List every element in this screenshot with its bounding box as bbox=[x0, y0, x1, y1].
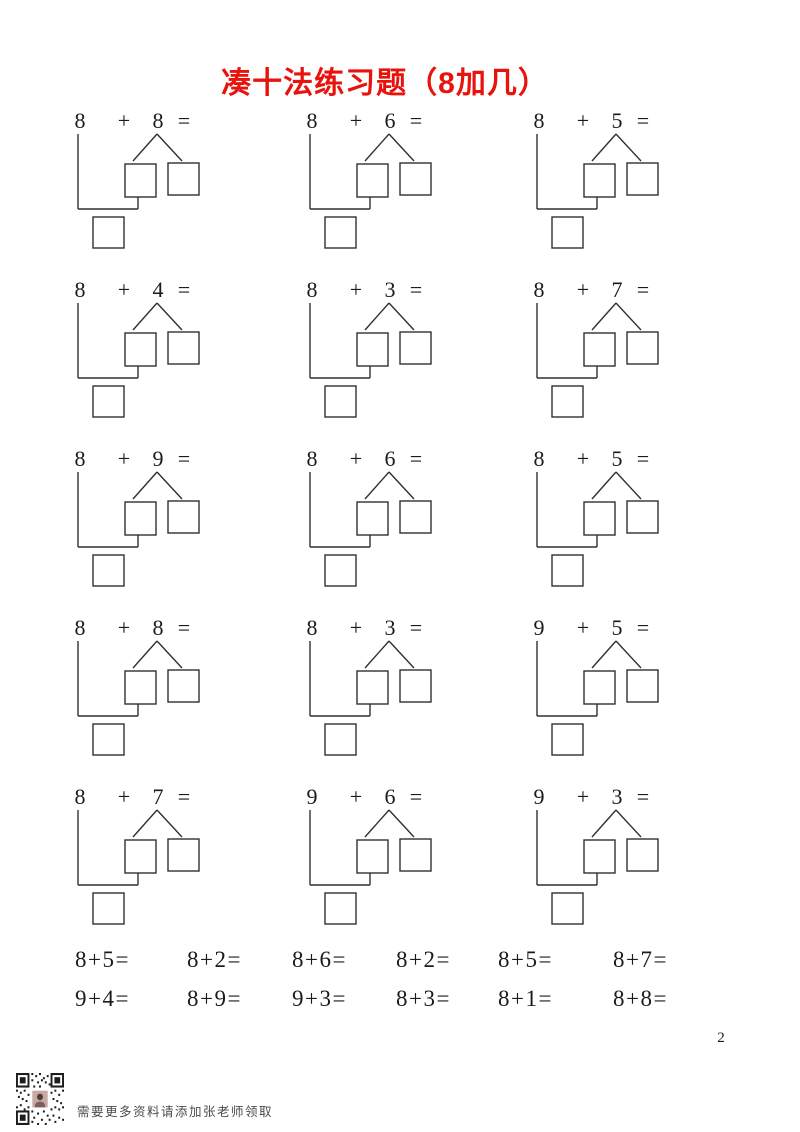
addend-1: 8 bbox=[68, 277, 92, 303]
answer-box bbox=[93, 386, 124, 417]
plus-sign: + bbox=[344, 277, 368, 303]
plus-sign: + bbox=[344, 446, 368, 472]
plus-sign: + bbox=[571, 615, 595, 641]
bond-line-left bbox=[133, 134, 157, 161]
bond-line-right bbox=[616, 303, 641, 330]
bond-line-left bbox=[592, 641, 616, 668]
quick-row-1: 8+5= 8+2= 8+6= 8+2= 8+5= 8+7= bbox=[68, 946, 758, 976]
addend-1: 8 bbox=[300, 615, 324, 641]
addend-1: 8 bbox=[68, 615, 92, 641]
addend-1: 9 bbox=[300, 784, 324, 810]
bond-line-right bbox=[389, 641, 414, 668]
number-bond-diagram bbox=[527, 470, 677, 592]
part-box-right bbox=[168, 332, 199, 364]
equals-sign: = bbox=[172, 446, 196, 472]
answer-box bbox=[325, 724, 356, 755]
worksheet-page: 凑十法练习题（8加几） 8 + 8 = 8 + 6 = bbox=[0, 0, 800, 1132]
bond-line-right bbox=[157, 134, 182, 161]
addend-2: 9 bbox=[146, 446, 170, 472]
equation: 8 + 7 = bbox=[527, 277, 677, 303]
problem-cell: 9 + 3 = bbox=[527, 784, 768, 953]
answer-box bbox=[552, 217, 583, 248]
problem-cell: 8 + 8 = bbox=[68, 108, 300, 277]
quick-practice: 8+5= 8+2= 8+6= 8+2= 8+5= 8+7= 9+4= 8+9= … bbox=[68, 946, 758, 1026]
answer-box bbox=[325, 893, 356, 924]
addend-2: 8 bbox=[146, 615, 170, 641]
quick-equation: 8+9= bbox=[187, 985, 242, 1013]
part-box-right bbox=[627, 332, 658, 364]
part-box-left bbox=[584, 502, 615, 535]
part-box-left bbox=[357, 671, 388, 704]
number-bond-diagram bbox=[300, 470, 450, 592]
plus-sign: + bbox=[344, 615, 368, 641]
equals-sign: = bbox=[631, 277, 655, 303]
quick-equation: 9+4= bbox=[75, 985, 130, 1013]
bond-line-left bbox=[133, 641, 157, 668]
problem-cell: 9 + 6 = bbox=[300, 784, 527, 953]
part-box-right bbox=[627, 670, 658, 702]
part-box-left bbox=[357, 333, 388, 366]
problem-cell: 8 + 5 = bbox=[527, 446, 768, 615]
answer-box bbox=[93, 217, 124, 248]
answer-box bbox=[325, 386, 356, 417]
number-bond-diagram bbox=[68, 470, 218, 592]
part-box-left bbox=[357, 840, 388, 873]
addend-1: 8 bbox=[300, 446, 324, 472]
equals-sign: = bbox=[631, 784, 655, 810]
equation: 8 + 7 = bbox=[68, 784, 218, 810]
plus-sign: + bbox=[571, 277, 595, 303]
part-box-right bbox=[168, 670, 199, 702]
bond-line-left bbox=[133, 472, 157, 499]
addend-2: 3 bbox=[378, 615, 402, 641]
part-box-left bbox=[125, 333, 156, 366]
bond-line-right bbox=[389, 303, 414, 330]
quick-equation: 8+8= bbox=[613, 985, 668, 1013]
plus-sign: + bbox=[112, 446, 136, 472]
bond-line-right bbox=[616, 134, 641, 161]
part-box-right bbox=[627, 839, 658, 871]
addend-1: 8 bbox=[527, 108, 551, 134]
answer-box bbox=[552, 893, 583, 924]
bond-line-left bbox=[365, 641, 389, 668]
equals-sign: = bbox=[172, 277, 196, 303]
addend-2: 5 bbox=[605, 446, 629, 472]
quick-equation: 8+6= bbox=[292, 946, 347, 974]
part-box-left bbox=[125, 671, 156, 704]
addend-1: 8 bbox=[527, 446, 551, 472]
bond-line-right bbox=[157, 472, 182, 499]
problem-cell: 8 + 6 = bbox=[300, 108, 527, 277]
part-box-left bbox=[584, 164, 615, 197]
page-title: 凑十法练习题（8加几） bbox=[0, 58, 770, 102]
part-box-right bbox=[168, 501, 199, 533]
problem-cell: 8 + 7 = bbox=[527, 277, 768, 446]
bond-line-left bbox=[133, 303, 157, 330]
problem-cell: 8 + 6 = bbox=[300, 446, 527, 615]
number-bond-diagram bbox=[300, 808, 450, 930]
problem-cell: 8 + 8 = bbox=[68, 615, 300, 784]
equation: 9 + 5 = bbox=[527, 615, 677, 641]
bond-line-left bbox=[592, 134, 616, 161]
quick-equation: 8+2= bbox=[396, 946, 451, 974]
number-bond-diagram bbox=[68, 808, 218, 930]
addend-1: 8 bbox=[300, 277, 324, 303]
quick-equation: 8+5= bbox=[75, 946, 130, 974]
equation: 9 + 3 = bbox=[527, 784, 677, 810]
part-box-right bbox=[168, 839, 199, 871]
part-box-left bbox=[357, 164, 388, 197]
equation: 8 + 5 = bbox=[527, 446, 677, 472]
part-box-left bbox=[357, 502, 388, 535]
addend-2: 6 bbox=[378, 446, 402, 472]
quick-equation: 8+7= bbox=[613, 946, 668, 974]
equation: 8 + 4 = bbox=[68, 277, 218, 303]
plus-sign: + bbox=[571, 108, 595, 134]
part-box-left bbox=[584, 333, 615, 366]
number-bond-diagram bbox=[300, 301, 450, 423]
answer-box bbox=[93, 893, 124, 924]
plus-sign: + bbox=[571, 784, 595, 810]
equals-sign: = bbox=[172, 615, 196, 641]
addend-2: 6 bbox=[378, 108, 402, 134]
quick-equation: 8+1= bbox=[498, 985, 553, 1013]
bond-line-right bbox=[389, 810, 414, 837]
plus-sign: + bbox=[344, 108, 368, 134]
problem-cell: 9 + 5 = bbox=[527, 615, 768, 784]
number-bond-diagram bbox=[300, 132, 450, 254]
quick-equation: 9+3= bbox=[292, 985, 347, 1013]
equation: 8 + 9 = bbox=[68, 446, 218, 472]
answer-box bbox=[552, 555, 583, 586]
addend-2: 5 bbox=[605, 108, 629, 134]
addend-2: 8 bbox=[146, 108, 170, 134]
number-bond-diagram bbox=[527, 132, 677, 254]
addend-1: 9 bbox=[527, 784, 551, 810]
answer-box bbox=[325, 555, 356, 586]
part-box-left bbox=[125, 840, 156, 873]
bond-line-left bbox=[365, 134, 389, 161]
part-box-right bbox=[627, 501, 658, 533]
footer-note: 需要更多资料请添加张老师领取 bbox=[77, 1101, 273, 1120]
quick-equation: 8+3= bbox=[396, 985, 451, 1013]
bond-line-left bbox=[133, 810, 157, 837]
equation: 9 + 6 = bbox=[300, 784, 450, 810]
plus-sign: + bbox=[112, 108, 136, 134]
quick-row-2: 9+4= 8+9= 9+3= 8+3= 8+1= 8+8= bbox=[68, 985, 758, 1015]
number-bond-diagram bbox=[68, 639, 218, 761]
addend-2: 7 bbox=[605, 277, 629, 303]
addend-2: 6 bbox=[378, 784, 402, 810]
equals-sign: = bbox=[631, 108, 655, 134]
bond-line-right bbox=[616, 641, 641, 668]
part-box-left bbox=[584, 840, 615, 873]
part-box-right bbox=[168, 163, 199, 195]
equals-sign: = bbox=[404, 108, 428, 134]
part-box-right bbox=[400, 332, 431, 364]
answer-box bbox=[552, 724, 583, 755]
addend-2: 4 bbox=[146, 277, 170, 303]
problem-cell: 8 + 3 = bbox=[300, 277, 527, 446]
equals-sign: = bbox=[631, 446, 655, 472]
qr-code bbox=[16, 1073, 64, 1125]
equation: 8 + 5 = bbox=[527, 108, 677, 134]
addend-1: 8 bbox=[300, 108, 324, 134]
equals-sign: = bbox=[631, 615, 655, 641]
part-box-right bbox=[627, 163, 658, 195]
part-box-right bbox=[400, 163, 431, 195]
answer-box bbox=[325, 217, 356, 248]
qr-avatar bbox=[32, 1091, 47, 1108]
addend-2: 7 bbox=[146, 784, 170, 810]
problem-cell: 8 + 9 = bbox=[68, 446, 300, 615]
number-bond-diagram bbox=[300, 639, 450, 761]
equation: 8 + 6 = bbox=[300, 446, 450, 472]
equation: 8 + 3 = bbox=[300, 277, 450, 303]
number-bond-diagram bbox=[527, 301, 677, 423]
number-bond-diagram bbox=[527, 808, 677, 930]
plus-sign: + bbox=[112, 615, 136, 641]
answer-box bbox=[93, 555, 124, 586]
bond-line-right bbox=[389, 134, 414, 161]
plus-sign: + bbox=[112, 277, 136, 303]
equals-sign: = bbox=[404, 277, 428, 303]
equals-sign: = bbox=[404, 446, 428, 472]
footer: 需要更多资料请添加张老师领取 bbox=[0, 1070, 800, 1132]
addend-2: 5 bbox=[605, 615, 629, 641]
addend-2: 3 bbox=[605, 784, 629, 810]
part-box-left bbox=[125, 502, 156, 535]
page-number: 2 bbox=[706, 1030, 736, 1047]
bond-line-left bbox=[365, 810, 389, 837]
number-bond-diagram bbox=[68, 132, 218, 254]
part-box-right bbox=[400, 670, 431, 702]
quick-equation: 8+5= bbox=[498, 946, 553, 974]
addend-1: 9 bbox=[527, 615, 551, 641]
plus-sign: + bbox=[112, 784, 136, 810]
bond-line-left bbox=[592, 303, 616, 330]
bond-line-right bbox=[616, 472, 641, 499]
equals-sign: = bbox=[172, 784, 196, 810]
answer-box bbox=[93, 724, 124, 755]
addend-1: 8 bbox=[527, 277, 551, 303]
problem-cell: 8 + 4 = bbox=[68, 277, 300, 446]
bond-line-right bbox=[157, 641, 182, 668]
part-box-right bbox=[400, 501, 431, 533]
bond-line-right bbox=[157, 810, 182, 837]
part-box-right bbox=[400, 839, 431, 871]
problem-cell: 8 + 3 = bbox=[300, 615, 527, 784]
equals-sign: = bbox=[404, 784, 428, 810]
part-box-left bbox=[125, 164, 156, 197]
addend-1: 8 bbox=[68, 446, 92, 472]
equals-sign: = bbox=[172, 108, 196, 134]
addend-2: 3 bbox=[378, 277, 402, 303]
problem-cell: 8 + 7 = bbox=[68, 784, 300, 953]
equation: 8 + 8 = bbox=[68, 108, 218, 134]
equation: 8 + 8 = bbox=[68, 615, 218, 641]
equation: 8 + 6 = bbox=[300, 108, 450, 134]
part-box-left bbox=[584, 671, 615, 704]
bond-line-left bbox=[592, 810, 616, 837]
bond-line-left bbox=[365, 303, 389, 330]
bond-line-left bbox=[365, 472, 389, 499]
equation: 8 + 3 = bbox=[300, 615, 450, 641]
bond-line-left bbox=[592, 472, 616, 499]
number-bond-diagram bbox=[527, 639, 677, 761]
quick-equation: 8+2= bbox=[187, 946, 242, 974]
plus-sign: + bbox=[344, 784, 368, 810]
bond-line-right bbox=[157, 303, 182, 330]
problem-cell: 8 + 5 = bbox=[527, 108, 768, 277]
number-bond-diagram bbox=[68, 301, 218, 423]
equals-sign: = bbox=[404, 615, 428, 641]
addend-1: 8 bbox=[68, 108, 92, 134]
bond-line-right bbox=[389, 472, 414, 499]
plus-sign: + bbox=[571, 446, 595, 472]
bond-line-right bbox=[616, 810, 641, 837]
addend-1: 8 bbox=[68, 784, 92, 810]
answer-box bbox=[552, 386, 583, 417]
problems-grid: 8 + 8 = 8 + 6 = bbox=[68, 108, 768, 953]
